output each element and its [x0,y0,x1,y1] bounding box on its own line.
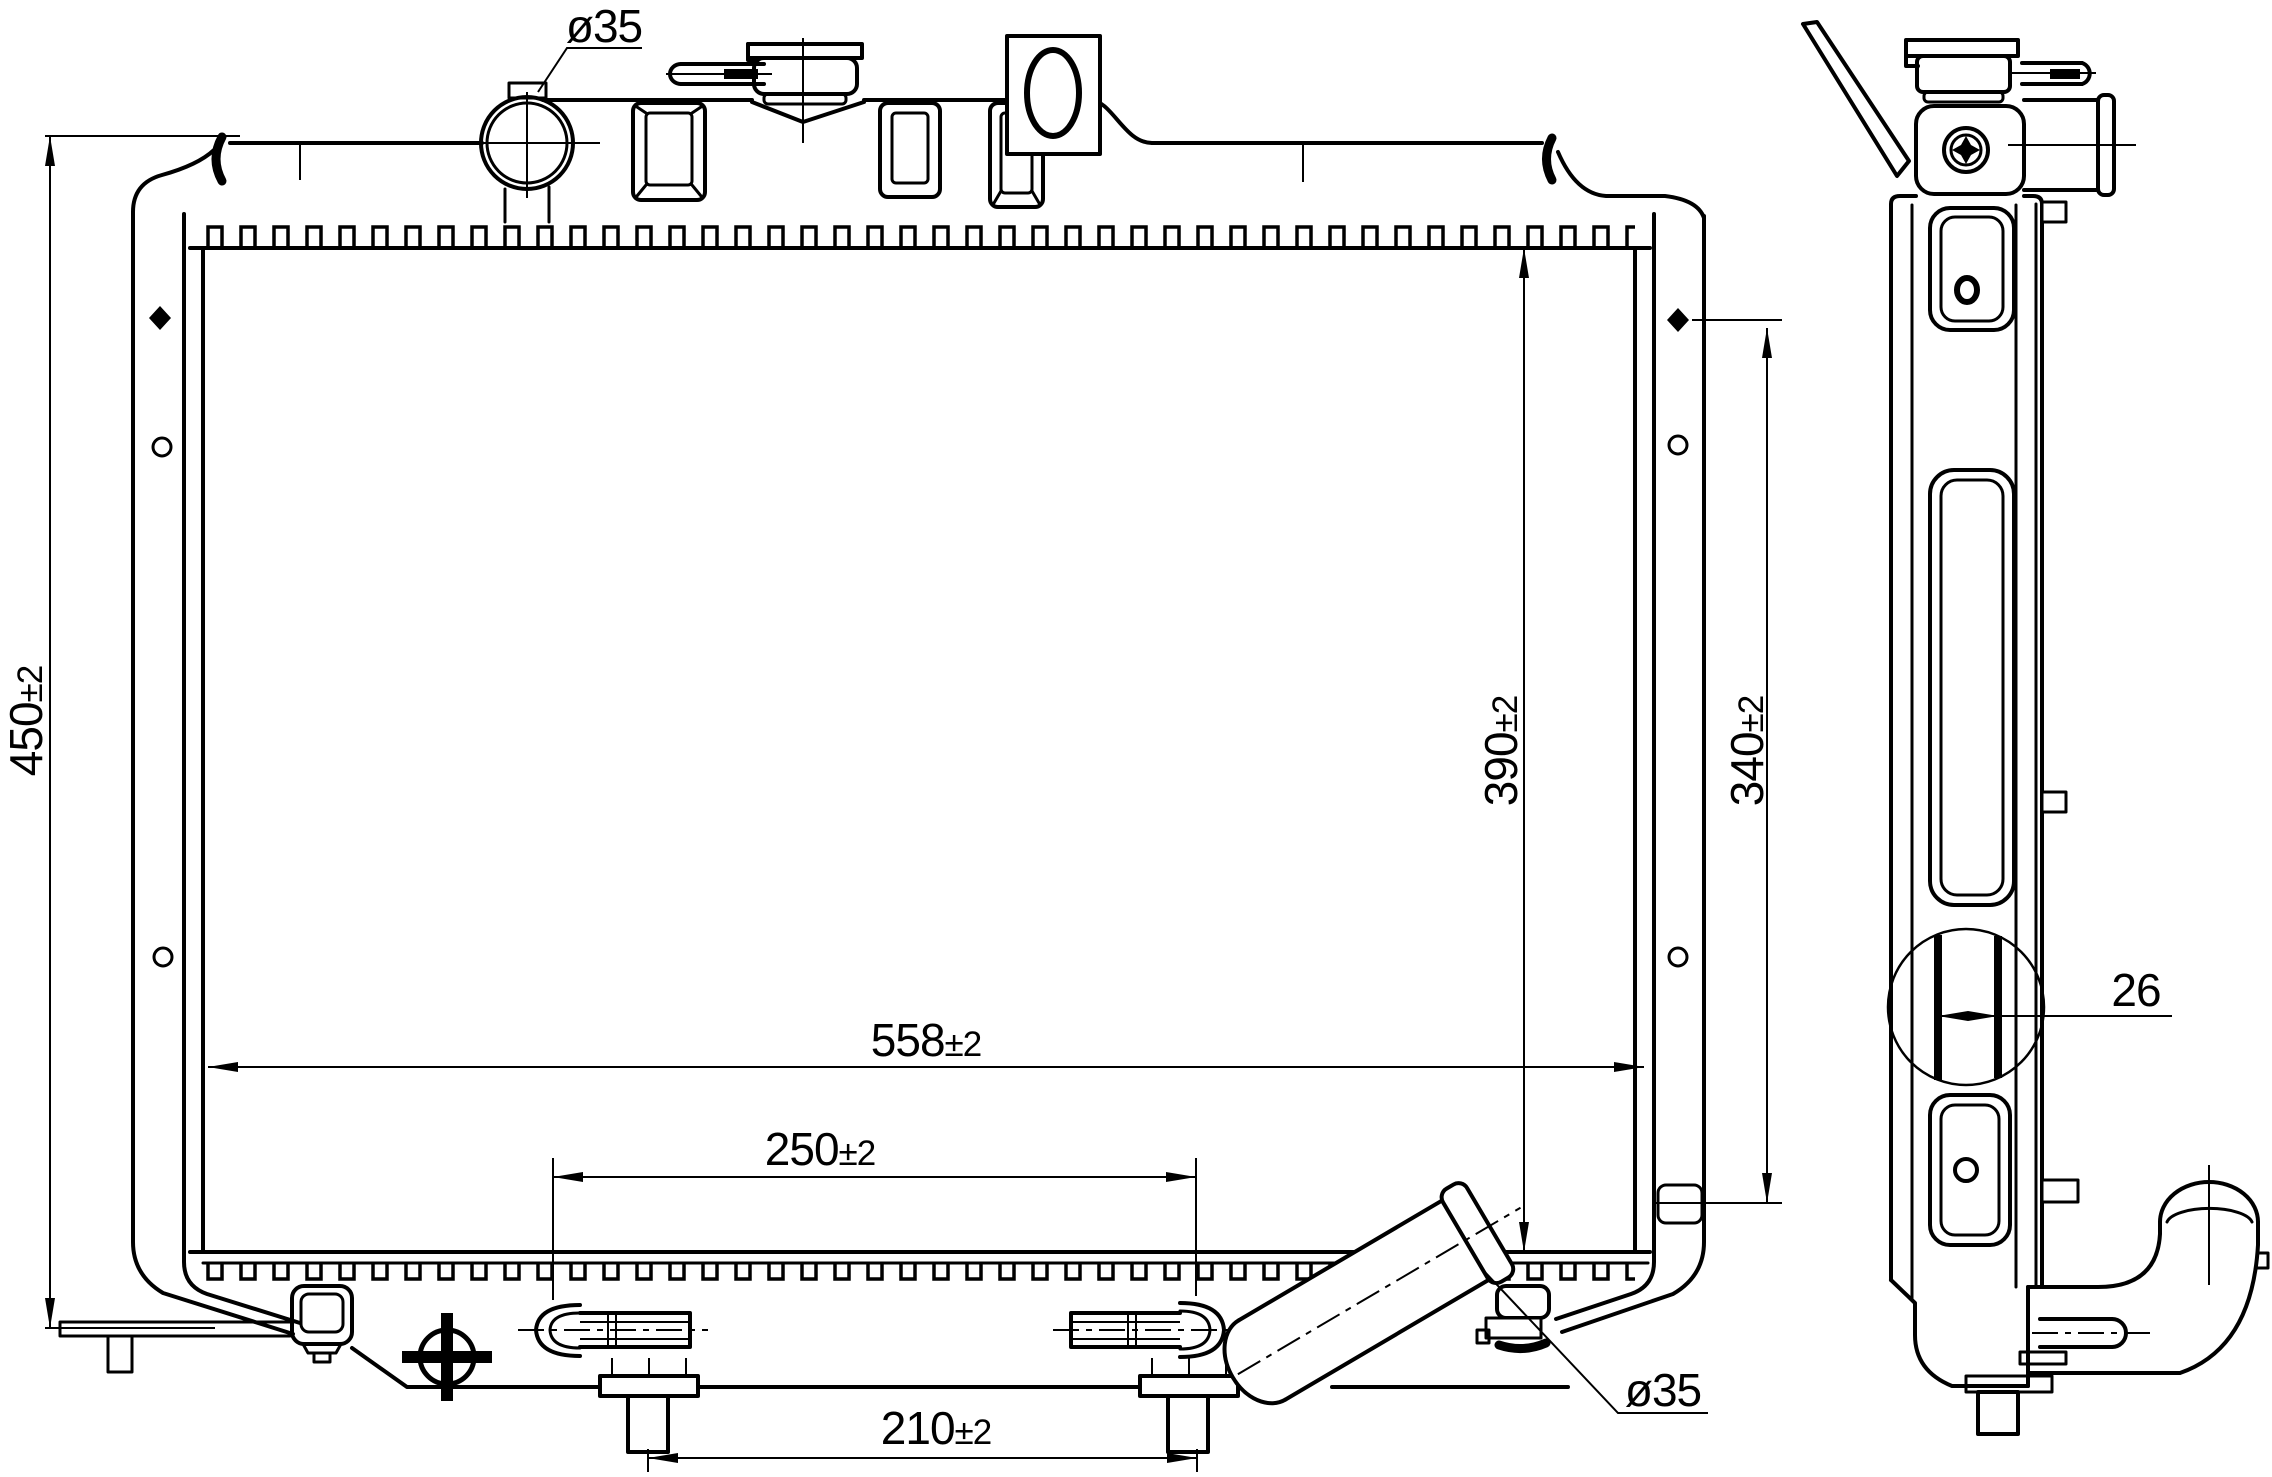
frame-hole [153,438,171,456]
side-bracket-fin [1803,22,1909,176]
radiator-drawing: 450±2 390±2 340±2 558±2 250±2 210±2 [0,0,2272,1477]
dimension-top-port: ø35 [538,0,642,92]
side-column [1888,196,2078,1300]
side-tab [2042,792,2066,812]
filler-neck [456,83,600,222]
side-rib-bottom [1930,1095,2010,1245]
front-view [60,36,1704,1452]
tank-seal-left [216,137,222,181]
side-bolt [2020,1319,2150,1364]
frame-hole [1669,948,1687,966]
serration-top [190,221,1650,249]
dim-label-250: 250±2 [765,1123,875,1175]
dim-label-558: 558±2 [871,1014,981,1066]
dimension-pin-span: 210±2 [648,1402,1197,1472]
dim-label-210: 210±2 [881,1402,991,1454]
tank-ribs [633,103,1043,207]
inlet-pipe-side [2008,95,2136,195]
frame-holes [149,306,1689,966]
dim-label-dia35-top: ø35 [566,0,642,52]
drain-stub [1978,1392,2018,1434]
radiator-cap [666,38,862,143]
dim-label-340: 340±2 [1721,696,1773,806]
left-frame-channel [133,212,300,1334]
frame-hole [1669,436,1687,454]
emboss-rib [633,103,705,200]
drain-plug [292,1286,352,1362]
filler-boss-side [1916,106,2024,194]
side-tab [2042,202,2066,222]
side-cap-assembly [1906,40,2096,102]
dimension-core-width: 558±2 [208,1014,1644,1067]
rib-hole [1955,1159,1977,1181]
dim-label-390: 390±2 [1475,696,1527,806]
emboss-rib [880,103,940,197]
oil-cooler-fitting-right [1053,1303,1242,1357]
side-rib-top [1930,208,2014,330]
pipe-bracket [1477,1286,1549,1349]
tank-seal-right [1547,138,1553,180]
mount-diamond [149,306,171,330]
mount-diamond [1667,308,1689,332]
side-view [1803,22,2268,1434]
oil-cooler-fitting-left [518,1305,708,1356]
dimension-core-thickness: 26 [1938,964,2172,1016]
top-tank [133,100,1704,218]
dimension-core-height: 390±2 [1475,248,1527,1252]
side-tab [2042,1180,2078,1202]
dim-label-dia35-bottom: ø35 [1625,1364,1701,1416]
frame-hole [154,948,172,966]
left-foot-pin [108,1336,132,1372]
dim-label-450: 450±2 [0,666,52,776]
right-frame-channel [1556,214,1704,1332]
side-rib-middle [1930,470,2014,905]
top-bracket [1007,36,1100,154]
drawing-canvas: 450±2 390±2 340±2 558±2 250±2 210±2 [0,0,2272,1477]
dim-label-26: 26 [2111,964,2160,1016]
mounting-pin-left [600,1358,698,1452]
rib-hole [1957,278,1977,302]
mounting-pin-right [1140,1358,1238,1452]
side-bottom-tank [1891,1165,2268,1434]
